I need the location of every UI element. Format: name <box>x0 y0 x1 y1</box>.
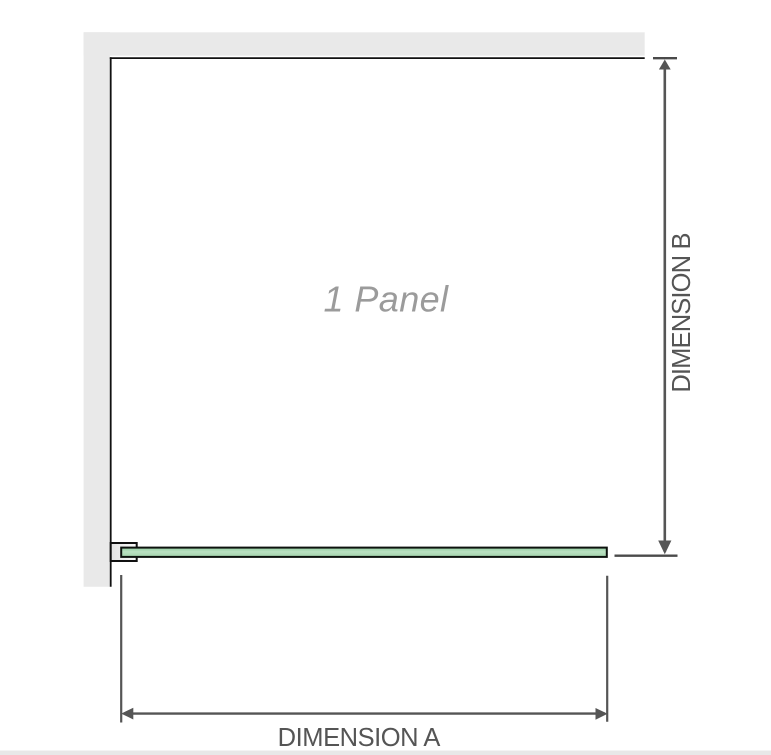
svg-text:DIMENSION B: DIMENSION B <box>668 233 696 392</box>
svg-text:DIMENSION A: DIMENSION A <box>278 724 441 752</box>
svg-text:1 Panel: 1 Panel <box>324 279 449 320</box>
